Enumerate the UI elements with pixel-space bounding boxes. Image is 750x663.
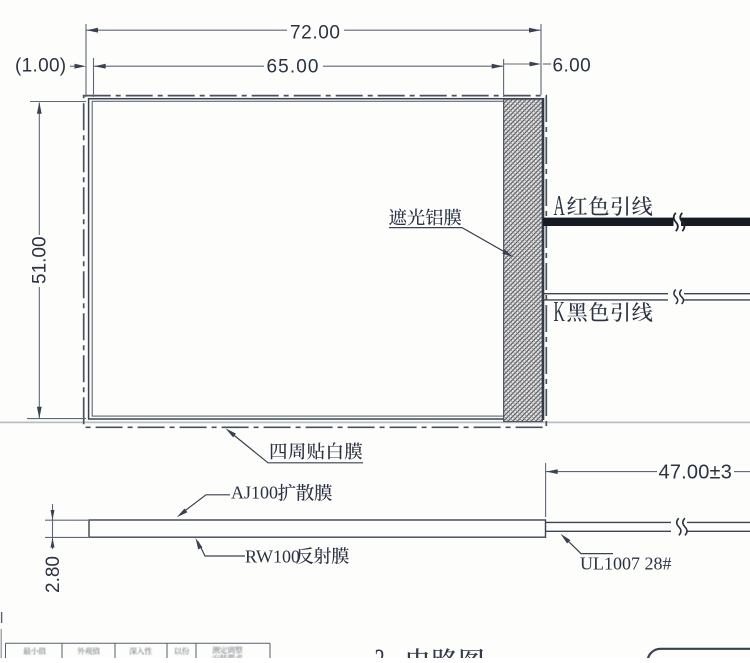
svg-text:RW100: RW100 (245, 547, 300, 567)
svg-text:65.00: 65.00 (267, 56, 320, 77)
svg-text:72.00: 72.00 (290, 23, 341, 44)
svg-text:2.80: 2.80 (43, 556, 64, 593)
svg-text:6.00: 6.00 (553, 55, 592, 76)
svg-text:A: A (554, 190, 566, 221)
svg-text:3: 3 (375, 642, 385, 658)
svg-text:(1.00): (1.00) (15, 56, 66, 77)
svg-text:47.00±3: 47.00±3 (659, 462, 733, 484)
svg-text:UL1007 28#: UL1007 28# (580, 554, 672, 574)
svg-text:K: K (554, 296, 566, 327)
svg-text:AJ100: AJ100 (231, 483, 278, 503)
svg-text:51.00: 51.00 (30, 236, 51, 284)
